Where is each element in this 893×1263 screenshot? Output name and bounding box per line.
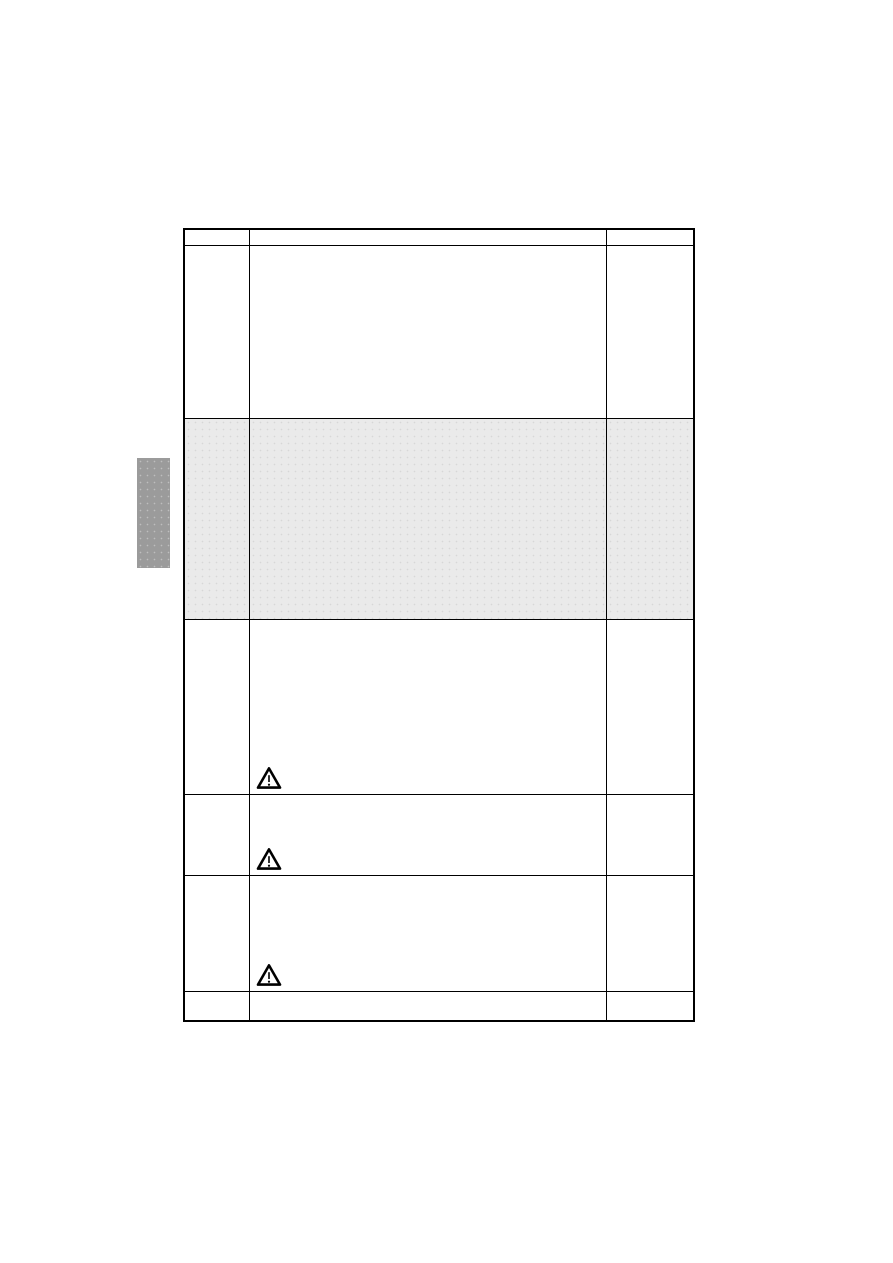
table-cell: [185, 620, 250, 795]
table-cell: [607, 992, 693, 1020]
table-cell: [185, 876, 250, 992]
table-cell: [185, 992, 250, 1020]
warning-triangle-icon: [256, 963, 282, 987]
table-cell: [185, 419, 250, 620]
table-header-cell: [607, 230, 693, 246]
section-tab: [137, 458, 170, 568]
warning-triangle-icon: [256, 766, 282, 790]
table-cell: [607, 419, 693, 620]
warning-triangle-icon: [256, 847, 282, 871]
table-cell: [607, 795, 693, 876]
table-cell: [250, 795, 607, 876]
table-cell: [250, 620, 607, 795]
document-table: [183, 228, 695, 1022]
table-cell: [250, 992, 607, 1020]
table-cell: [185, 795, 250, 876]
table-header-cell: [185, 230, 250, 246]
table-header-cell: [250, 230, 607, 246]
table-cell: [185, 246, 250, 419]
table-cell: [250, 419, 607, 620]
table-cell: [607, 876, 693, 992]
table-cell: [250, 876, 607, 992]
table-cell: [250, 246, 607, 419]
table-cell: [607, 620, 693, 795]
table-cell: [607, 246, 693, 419]
